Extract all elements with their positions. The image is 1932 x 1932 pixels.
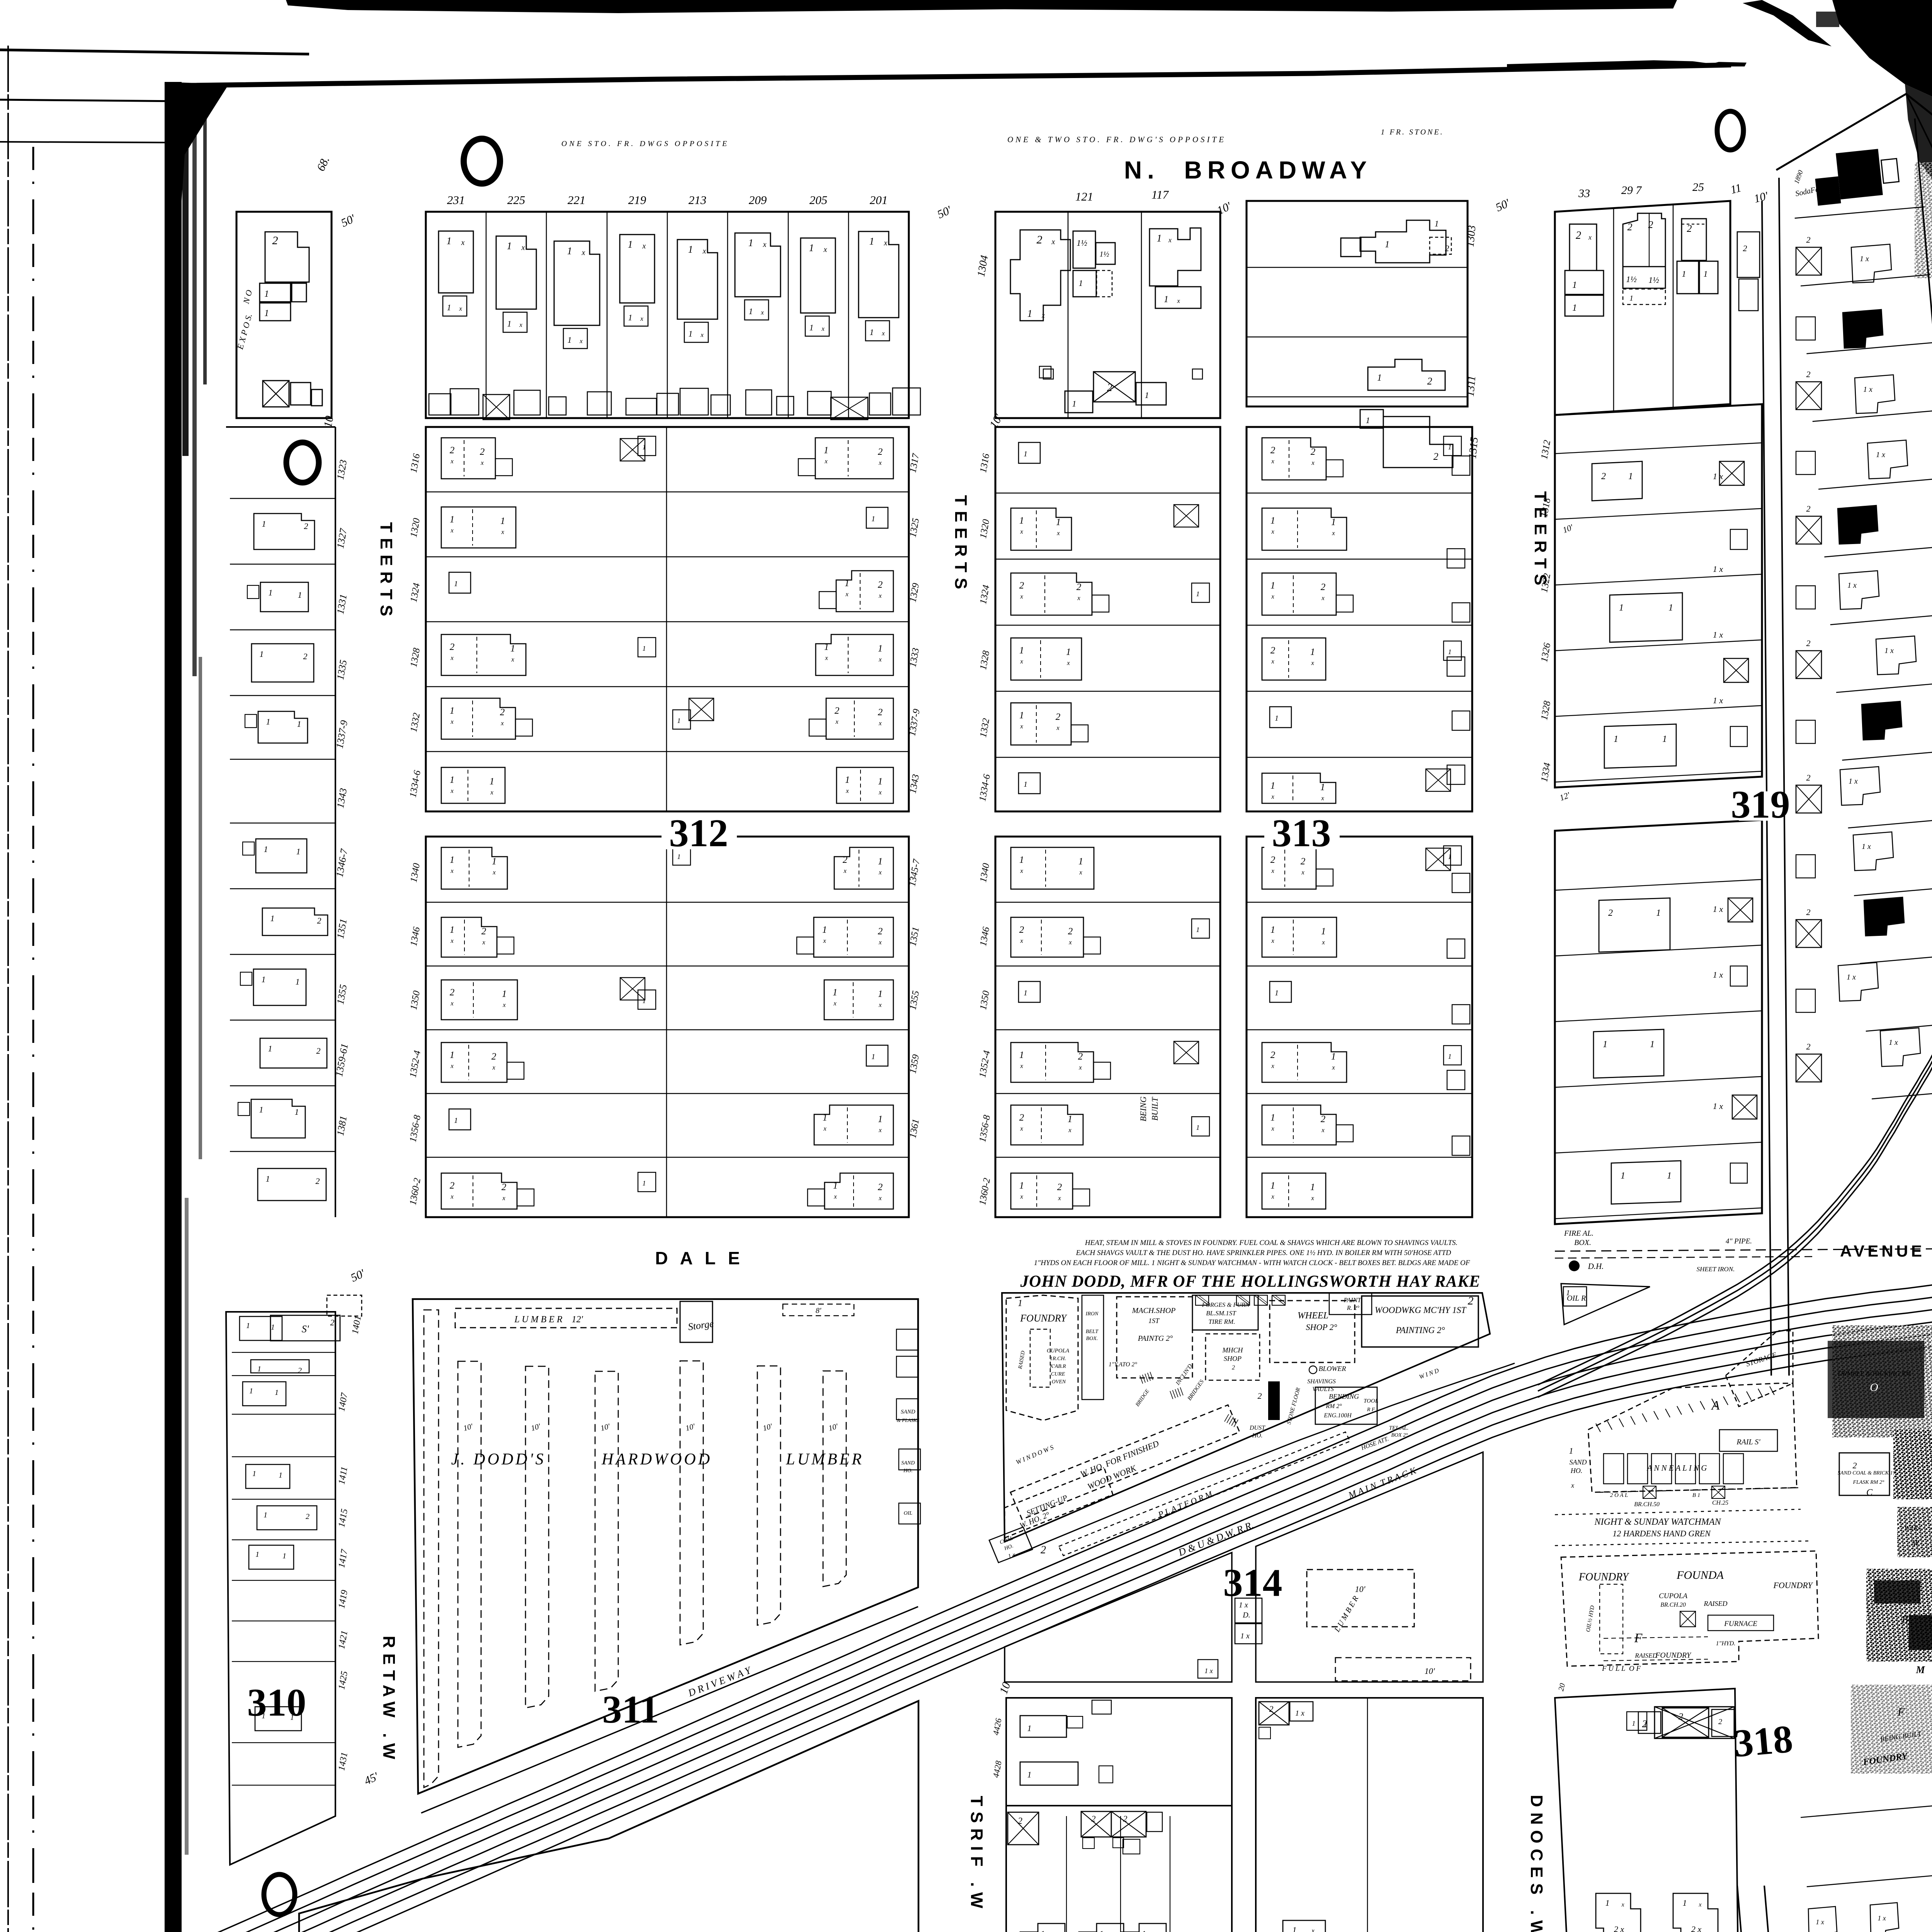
svg-text:1: 1 xyxy=(450,925,455,935)
svg-text:MHCH: MHCH xyxy=(1222,1346,1243,1354)
svg-text:BLOWER: BLOWER xyxy=(1319,1365,1346,1372)
svg-text:2: 2 xyxy=(1427,376,1432,387)
svg-text:1: 1 xyxy=(677,717,681,724)
svg-text:x: x xyxy=(502,1194,505,1202)
svg-text:x: x xyxy=(823,245,827,254)
svg-text:1: 1 xyxy=(628,313,633,322)
svg-text:1: 1 xyxy=(1621,1171,1625,1181)
svg-text:x: x xyxy=(1056,724,1060,731)
svg-text:2: 2 xyxy=(304,521,308,531)
svg-text:310: 310 xyxy=(247,1681,306,1725)
svg-text:SHOP 2°: SHOP 2° xyxy=(1306,1322,1337,1332)
svg-text:TRIMBLE & PACKING RM: TRIMBLE & PACKING RM xyxy=(1837,1370,1912,1377)
svg-text:1: 1 xyxy=(249,1387,253,1395)
svg-text:x: x xyxy=(1077,594,1080,602)
svg-text:x: x xyxy=(1020,937,1023,944)
svg-text:FIRE AL.: FIRE AL. xyxy=(1564,1229,1594,1238)
svg-text:2: 2 xyxy=(1068,926,1073,937)
svg-text:EACH SHAVGS VAULT & THE DUST H: EACH SHAVGS VAULT & THE DUST HO. HAVE SP… xyxy=(1076,1249,1451,1257)
svg-text:1: 1 xyxy=(1629,294,1633,303)
svg-text:x: x xyxy=(579,337,583,345)
svg-text:2: 2 xyxy=(450,987,455,998)
svg-text:2: 2 xyxy=(1743,243,1747,253)
svg-text:FOUNDRY: FOUNDRY xyxy=(1578,1571,1630,1583)
svg-text:DUST: DUST xyxy=(1249,1425,1265,1431)
svg-text:1: 1 xyxy=(1196,590,1200,598)
svg-text:1: 1 xyxy=(279,1471,282,1480)
svg-text:2: 2 xyxy=(450,1180,455,1191)
svg-text:SAND: SAND xyxy=(1570,1458,1587,1466)
svg-text:1: 1 xyxy=(1027,308,1032,319)
svg-text:2: 2 xyxy=(1601,471,1606,481)
svg-text:x: x xyxy=(500,719,504,727)
svg-text:2: 2 xyxy=(1853,1461,1857,1470)
svg-text:1: 1 xyxy=(1683,1898,1687,1908)
svg-text:1: 1 xyxy=(450,1050,455,1060)
svg-text:x: x xyxy=(1588,233,1592,241)
svg-text:x: x xyxy=(1271,937,1274,944)
svg-text:DNOCES .W: DNOCES .W xyxy=(1527,1795,1546,1932)
svg-text:2: 2 xyxy=(878,447,883,457)
svg-text:1"HYD.: 1"HYD. xyxy=(1716,1640,1736,1647)
svg-text:2 x: 2 x xyxy=(1614,1924,1624,1932)
svg-text:12 HARDENS HAND GREN: 12 HARDENS HAND GREN xyxy=(1612,1529,1711,1538)
svg-text:x: x xyxy=(450,1000,454,1007)
svg-text:2: 2 xyxy=(1642,1718,1647,1730)
svg-text:1 x: 1 x xyxy=(1870,712,1879,720)
svg-text:HEAT, STEAM IN MILL & STOVES I: HEAT, STEAM IN MILL & STOVES IN FOUNDRY.… xyxy=(1085,1239,1458,1247)
svg-text:221: 221 xyxy=(568,193,586,207)
svg-text:x: x xyxy=(501,528,504,536)
svg-text:MACH.SHOP: MACH.SHOP xyxy=(1132,1306,1176,1315)
svg-text:1: 1 xyxy=(824,642,829,652)
svg-text:x: x xyxy=(763,240,767,249)
svg-text:213: 213 xyxy=(689,193,707,207)
svg-text:2: 2 xyxy=(1806,907,1811,917)
svg-text:1: 1 xyxy=(447,303,451,312)
svg-text:x: x xyxy=(821,325,825,332)
svg-text:313: 313 xyxy=(1272,811,1331,855)
svg-text:1: 1 xyxy=(450,514,455,525)
svg-text:M: M xyxy=(1915,1664,1925,1675)
svg-text:1: 1 xyxy=(1569,1446,1573,1456)
svg-text:1: 1 xyxy=(1087,1930,1091,1932)
svg-text:x: x xyxy=(519,321,522,328)
svg-text:2: 2 xyxy=(1056,712,1061,722)
svg-text:BR.CH.50: BR.CH.50 xyxy=(1634,1501,1660,1508)
svg-text:x: x xyxy=(1020,1125,1023,1132)
svg-text:x: x xyxy=(845,787,849,794)
svg-text:1: 1 xyxy=(296,847,301,856)
svg-text:1: 1 xyxy=(1320,782,1325,793)
svg-text:PAINT: PAINT xyxy=(1343,1296,1362,1304)
svg-text:x: x xyxy=(1271,867,1274,874)
svg-text:121: 121 xyxy=(1075,190,1094,203)
svg-text:1 x: 1 x xyxy=(1884,646,1894,655)
svg-text:x: x xyxy=(1698,1901,1701,1908)
svg-text:2: 2 xyxy=(1269,1704,1274,1714)
svg-text:25: 25 xyxy=(1692,181,1704,194)
svg-text:1: 1 xyxy=(1068,1114,1073,1124)
svg-text:1: 1 xyxy=(1196,926,1200,934)
svg-text:1: 1 xyxy=(567,245,572,257)
svg-text:x: x xyxy=(878,459,882,466)
svg-text:x: x xyxy=(881,330,885,337)
svg-text:x: x xyxy=(450,1062,454,1070)
svg-text:FOUNDRY: FOUNDRY xyxy=(1020,1313,1067,1324)
svg-text:& FLASKS: & FLASKS xyxy=(897,1417,920,1423)
svg-text:2: 2 xyxy=(1806,504,1811,514)
svg-text:1: 1 xyxy=(1448,443,1452,451)
svg-text:1: 1 xyxy=(1385,240,1389,250)
svg-text:1: 1 xyxy=(1145,390,1149,400)
svg-text:FLASK RM 2°: FLASK RM 2° xyxy=(1852,1480,1884,1485)
svg-text:1: 1 xyxy=(833,1180,838,1191)
svg-text:1: 1 xyxy=(500,516,505,526)
svg-text:F: F xyxy=(1897,1706,1905,1718)
svg-text:x: x xyxy=(702,247,706,255)
svg-text:OIL: OIL xyxy=(904,1510,913,1516)
svg-text:2: 2 xyxy=(1041,1544,1046,1556)
svg-text:2: 2 xyxy=(1628,221,1633,233)
svg-text:x: x xyxy=(823,1125,827,1132)
svg-text:2: 2 xyxy=(1107,382,1112,394)
svg-text:1: 1 xyxy=(1027,1770,1032,1779)
svg-text:PAINTG 2°: PAINTG 2° xyxy=(1138,1334,1173,1343)
svg-text:1: 1 xyxy=(1668,603,1673,613)
svg-text:1: 1 xyxy=(268,1044,272,1053)
svg-text:2: 2 xyxy=(1718,1718,1722,1726)
svg-text:CURE: CURE xyxy=(1051,1371,1065,1377)
svg-text:RM 2°: RM 2° xyxy=(1325,1403,1342,1410)
svg-text:1 FR. STONE.: 1 FR. STONE. xyxy=(1381,128,1444,136)
svg-text:NIGHT & SUNDAY WATCHMAN: NIGHT & SUNDAY WATCHMAN xyxy=(1594,1517,1721,1527)
svg-text:1 x: 1 x xyxy=(1860,255,1869,263)
svg-text:1: 1 xyxy=(450,775,455,785)
svg-text:x: x xyxy=(1020,1062,1023,1070)
svg-text:x: x xyxy=(843,867,847,874)
svg-text:LUMBER: LUMBER xyxy=(786,1451,864,1468)
svg-text:HO.: HO. xyxy=(1570,1467,1583,1475)
svg-text:x: x xyxy=(1058,1194,1061,1202)
svg-text:1: 1 xyxy=(1566,1289,1570,1297)
svg-text:1: 1 xyxy=(833,987,838,998)
svg-text:1: 1 xyxy=(454,1116,458,1125)
svg-text:HARDWOOD: HARDWOOD xyxy=(601,1451,712,1468)
svg-text:x: x xyxy=(1020,528,1023,535)
svg-text:1: 1 xyxy=(252,1469,256,1478)
svg-text:x: x xyxy=(480,459,484,466)
svg-text:x: x xyxy=(700,331,704,338)
svg-text:BOX.: BOX. xyxy=(1086,1336,1098,1342)
svg-text:2: 2 xyxy=(1608,908,1613,918)
svg-text:OVEN: OVEN xyxy=(1052,1379,1066,1385)
svg-text:x: x xyxy=(878,789,882,796)
svg-text:x: x xyxy=(1020,1193,1023,1200)
svg-text:1: 1 xyxy=(1129,1930,1134,1932)
svg-text:1: 1 xyxy=(878,776,883,787)
svg-text:x: x xyxy=(1332,529,1335,537)
svg-text:2: 2 xyxy=(835,706,840,716)
svg-text:1: 1 xyxy=(878,1114,883,1124)
svg-text:S': S' xyxy=(302,1323,309,1335)
svg-text:IRON: IRON xyxy=(1085,1311,1099,1317)
svg-text:x: x xyxy=(1020,723,1023,730)
svg-text:x: x xyxy=(1271,457,1274,465)
svg-text:x: x xyxy=(502,1001,506,1009)
svg-text:x: x xyxy=(1051,238,1055,246)
svg-text:2: 2 xyxy=(1019,580,1024,591)
svg-text:1: 1 xyxy=(1650,1039,1655,1049)
svg-text:1ST: 1ST xyxy=(1148,1317,1160,1325)
svg-text:x: x xyxy=(450,457,454,465)
svg-text:x: x xyxy=(1321,1126,1325,1134)
svg-text:1: 1 xyxy=(1628,471,1633,481)
svg-text:x: x xyxy=(1321,794,1324,802)
svg-text:x: x xyxy=(1311,1927,1315,1932)
svg-text:2: 2 xyxy=(1301,856,1306,867)
svg-text:1 x: 1 x xyxy=(1862,842,1871,851)
svg-text:319: 319 xyxy=(1731,783,1790,827)
svg-text:2: 2 xyxy=(303,651,308,661)
svg-text:1: 1 xyxy=(257,1365,261,1373)
svg-text:2: 2 xyxy=(1806,773,1811,782)
svg-text:2: 2 xyxy=(1806,638,1811,648)
svg-text:1: 1 xyxy=(266,717,270,726)
svg-text:2: 2 xyxy=(1445,243,1449,253)
svg-text:D.: D. xyxy=(1242,1611,1250,1619)
svg-text:1: 1 xyxy=(1682,269,1686,279)
svg-text:1: 1 xyxy=(869,236,874,247)
svg-text:x: x xyxy=(450,718,454,725)
svg-text:1: 1 xyxy=(1024,450,1027,458)
svg-text:1: 1 xyxy=(296,977,300,986)
svg-text:1: 1 xyxy=(1293,1925,1297,1932)
svg-text:1: 1 xyxy=(1196,1124,1200,1131)
svg-text:2: 2 xyxy=(1258,1391,1262,1401)
svg-text:2: 2 xyxy=(316,1176,320,1186)
svg-text:x: x xyxy=(1020,593,1023,600)
svg-text:1½: 1½ xyxy=(1626,274,1637,284)
svg-text:B: B xyxy=(1902,1614,1908,1625)
svg-text:117: 117 xyxy=(1151,188,1169,201)
svg-text:BR.CH.20: BR.CH.20 xyxy=(1660,1602,1686,1608)
svg-text:1: 1 xyxy=(1164,294,1168,304)
svg-text:8': 8' xyxy=(816,1306,821,1315)
svg-text:x: x xyxy=(1321,594,1325,602)
svg-text:1: 1 xyxy=(264,844,268,854)
svg-text:ONE STO. FR. DWGS OPPOSITE: ONE STO. FR. DWGS OPPOSITE xyxy=(561,139,730,148)
svg-text:1: 1 xyxy=(1572,303,1577,313)
svg-text:1: 1 xyxy=(870,327,874,337)
svg-text:x: x xyxy=(1068,939,1072,946)
svg-text:1: 1 xyxy=(1448,1053,1452,1060)
svg-text:N. BROADWAY: N. BROADWAY xyxy=(1124,156,1372,184)
svg-text:2: 2 xyxy=(1434,451,1439,462)
svg-text:1: 1 xyxy=(628,239,633,250)
svg-text:1: 1 xyxy=(502,989,507,999)
svg-text:1: 1 xyxy=(878,643,883,654)
svg-text:1 x: 1 x xyxy=(1846,516,1855,524)
svg-text:2: 2 xyxy=(1019,925,1024,935)
svg-text:1 x: 1 x xyxy=(1713,1101,1723,1111)
svg-text:1 x: 1 x xyxy=(1863,385,1872,394)
svg-text:1: 1 xyxy=(260,649,264,659)
svg-text:1: 1 xyxy=(264,1511,267,1519)
svg-text:2 O A L: 2 O A L xyxy=(1610,1492,1628,1498)
svg-text:FOUNDRY: FOUNDRY xyxy=(1655,1651,1692,1660)
svg-text:1: 1 xyxy=(1028,1930,1032,1932)
svg-text:1 x: 1 x xyxy=(1847,973,1856,981)
svg-text:1: 1 xyxy=(454,580,458,588)
svg-text:231: 231 xyxy=(447,193,465,207)
svg-text:L U M B E R 12': L U M B E R 12' xyxy=(514,1315,583,1325)
svg-text:1 x: 1 x xyxy=(1847,581,1857,590)
svg-text:x: x xyxy=(642,242,646,250)
svg-text:1 x: 1 x xyxy=(1713,904,1723,914)
svg-text:x: x xyxy=(1311,659,1314,667)
svg-text:1: 1 xyxy=(1662,734,1667,744)
svg-text:1: 1 xyxy=(1275,714,1279,723)
svg-text:1R.CH.: 1R.CH. xyxy=(1050,1356,1066,1362)
svg-text:x: x xyxy=(1301,869,1304,876)
svg-text:SHAVINGS: SHAVINGS xyxy=(1307,1378,1336,1385)
svg-text:SHEET IRON.: SHEET IRON. xyxy=(1697,1265,1735,1273)
svg-text:x: x xyxy=(640,315,643,322)
svg-text:2: 2 xyxy=(330,1318,335,1327)
svg-text:x: x xyxy=(878,719,882,727)
svg-text:O: O xyxy=(1870,1381,1878,1394)
svg-text:2: 2 xyxy=(298,1366,302,1375)
svg-text:1: 1 xyxy=(1157,233,1162,244)
svg-text:x: x xyxy=(1621,1901,1624,1908)
svg-text:1: 1 xyxy=(1614,734,1618,744)
svg-text:1 x: 1 x xyxy=(1816,1918,1824,1926)
svg-text:BEING: BEING xyxy=(1138,1097,1148,1122)
svg-text:1: 1 xyxy=(689,329,693,338)
svg-text:JOHN DODD, MFR OF THE HOLLINGS: JOHN DODD, MFR OF THE HOLLINGSWORTH HAY … xyxy=(1020,1272,1481,1291)
svg-text:1 x: 1 x xyxy=(1889,1038,1898,1047)
svg-text:D A L E: D A L E xyxy=(655,1248,743,1268)
svg-text:2: 2 xyxy=(1576,230,1581,241)
svg-text:RAISED: RAISED xyxy=(1704,1600,1728,1607)
svg-text:205: 205 xyxy=(810,193,828,207)
svg-text:2: 2 xyxy=(1037,233,1043,246)
svg-text:B 1: B 1 xyxy=(1692,1492,1700,1498)
svg-text:1: 1 xyxy=(1024,780,1027,789)
svg-text:x: x xyxy=(450,654,454,662)
svg-text:1: 1 xyxy=(1704,269,1708,279)
svg-text:x: x xyxy=(825,654,828,662)
svg-text:A N N E A L I N G: A N N E A L I N G xyxy=(1646,1463,1707,1473)
svg-text:x: x xyxy=(1068,1126,1071,1134)
svg-text:2 x: 2 x xyxy=(1691,1924,1702,1932)
svg-text:1: 1 xyxy=(1366,415,1370,425)
svg-text:1: 1 xyxy=(1018,1298,1022,1308)
svg-text:201: 201 xyxy=(870,193,888,207)
svg-text:BL.SM.1ST: BL.SM.1ST xyxy=(1206,1310,1236,1317)
svg-text:x: x xyxy=(835,718,838,725)
svg-text:BENDING: BENDING xyxy=(1329,1393,1359,1400)
svg-text:1: 1 xyxy=(450,855,455,865)
svg-text:1: 1 xyxy=(262,975,266,984)
svg-text:311: 311 xyxy=(602,1688,659,1731)
svg-text:1: 1 xyxy=(845,578,850,588)
svg-text:1 x: 1 x xyxy=(1872,908,1882,916)
svg-text:1: 1 xyxy=(871,1053,875,1061)
svg-text:ONE & TWO STO. FR. DWG'S OPPOS: ONE & TWO STO. FR. DWG'S OPPOSITE xyxy=(1007,135,1226,144)
svg-text:1: 1 xyxy=(871,515,875,523)
svg-text:2: 2 xyxy=(1270,1050,1276,1060)
svg-text:1 x: 1 x xyxy=(1204,1667,1213,1675)
svg-text:318: 318 xyxy=(1732,1717,1794,1766)
svg-text:2: 2 xyxy=(480,447,485,457)
svg-text:209: 209 xyxy=(749,193,767,207)
svg-text:1311: 1311 xyxy=(1464,375,1478,397)
svg-text:1: 1 xyxy=(492,856,497,867)
svg-text:1: 1 xyxy=(643,1179,646,1187)
svg-text:1: 1 xyxy=(809,242,814,253)
svg-text:2: 2 xyxy=(500,707,505,718)
svg-text:2: 2 xyxy=(450,445,455,456)
svg-text:1: 1 xyxy=(1019,645,1024,656)
svg-text:BOX.: BOX. xyxy=(1574,1238,1591,1247)
svg-text:1: 1 xyxy=(845,775,850,785)
svg-text:x: x xyxy=(450,867,454,874)
svg-text:FOUNDA: FOUNDA xyxy=(1676,1569,1724,1582)
svg-text:x: x xyxy=(1020,867,1023,874)
svg-text:x: x xyxy=(1168,236,1172,244)
svg-text:1: 1 xyxy=(507,319,512,328)
svg-text:SAND: SAND xyxy=(901,1460,915,1466)
svg-text:2: 2 xyxy=(1806,235,1811,245)
svg-text:1 x: 1 x xyxy=(1851,320,1861,328)
svg-text:x: x xyxy=(1332,1064,1335,1071)
svg-text:1: 1 xyxy=(1435,219,1439,228)
svg-text:1 x: 1 x xyxy=(1041,1929,1051,1932)
svg-text:WOODWKG MC'HY 1ST: WOODWKG MC'HY 1ST xyxy=(1375,1305,1467,1315)
svg-text:1 x: 1 x xyxy=(1713,564,1723,574)
svg-text:1"Y.ATO 2°: 1"Y.ATO 2° xyxy=(1109,1361,1137,1368)
svg-text:2: 2 xyxy=(1270,645,1276,656)
svg-text:1: 1 xyxy=(568,335,572,345)
svg-text:x: x xyxy=(1321,939,1325,946)
svg-text:CUPOLA: CUPOLA xyxy=(1047,1348,1070,1354)
svg-text:1: 1 xyxy=(1019,710,1024,721)
svg-text:312: 312 xyxy=(669,811,728,855)
svg-text:2: 2 xyxy=(1806,1042,1811,1051)
svg-text:1: 1 xyxy=(510,643,515,654)
svg-text:x: x xyxy=(1020,658,1023,665)
svg-text:1: 1 xyxy=(1619,603,1624,613)
svg-text:WHEEL: WHEEL xyxy=(1298,1311,1328,1321)
svg-text:x: x xyxy=(450,787,454,794)
svg-text:2: 2 xyxy=(1468,1294,1474,1307)
svg-text:1: 1 xyxy=(824,445,829,456)
svg-text:x: x xyxy=(582,248,585,257)
svg-text:F U L L O F: F U L L O F xyxy=(1602,1665,1641,1673)
svg-text:1: 1 xyxy=(1310,1182,1315,1192)
svg-text:1: 1 xyxy=(1019,1050,1024,1060)
svg-text:OIL R.: OIL R. xyxy=(1567,1294,1588,1303)
svg-text:1 x: 1 x xyxy=(1295,1709,1304,1718)
svg-text:1: 1 xyxy=(1056,517,1061,527)
svg-text:1: 1 xyxy=(1078,856,1083,867)
svg-text:2: 2 xyxy=(317,916,321,925)
svg-text:2: 2 xyxy=(878,926,883,937)
svg-text:1: 1 xyxy=(1632,1719,1636,1727)
svg-text:1: 1 xyxy=(1072,399,1077,408)
